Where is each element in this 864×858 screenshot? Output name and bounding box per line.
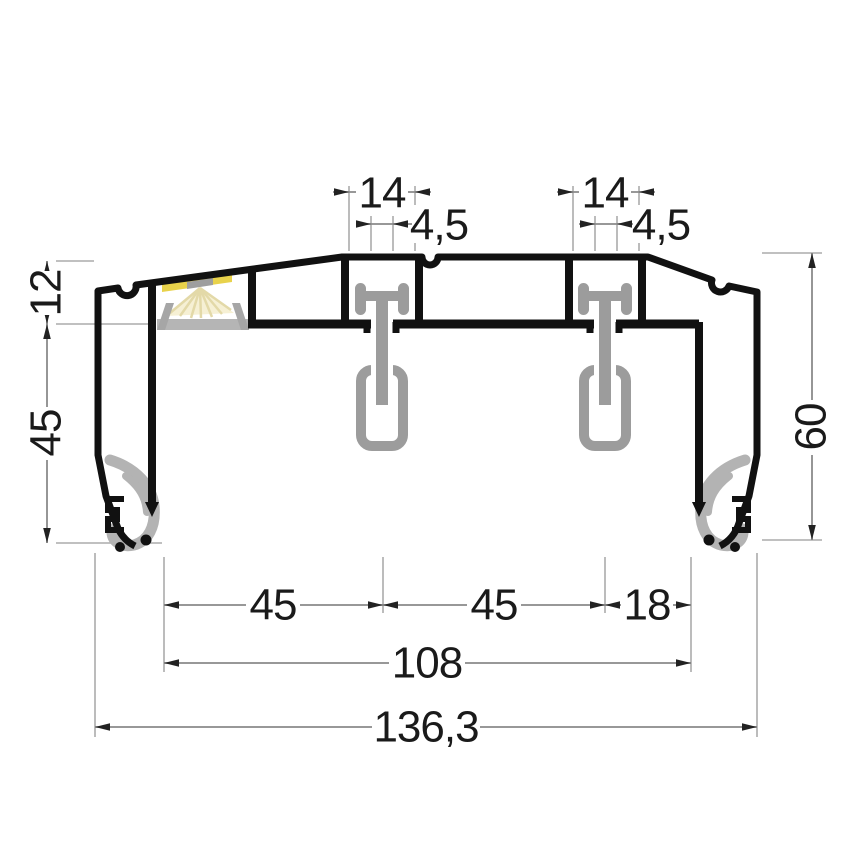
dim-label-inner-width: 108 xyxy=(392,639,462,688)
dim-label-channel-width-right: 14 xyxy=(582,169,629,218)
dim-label-body-height: 45 xyxy=(22,410,71,457)
dim-label-span-left: 45 xyxy=(250,581,297,630)
dimension-labels: 14 4,5 14 4,5 12 45 60 45 45 18 108 136,… xyxy=(22,169,836,752)
glider-left-wheel-a xyxy=(355,283,366,315)
glider-right-wheel-b xyxy=(621,283,632,315)
dim-label-span-right: 18 xyxy=(624,581,671,630)
profile-drawing: 14 4,5 14 4,5 12 45 60 45 45 18 108 136,… xyxy=(0,0,864,858)
glider-left-wheel-b xyxy=(398,283,409,315)
dim-label-total-width: 136,3 xyxy=(373,703,478,752)
glider-right-wheel-a xyxy=(578,283,589,315)
foot-dots xyxy=(115,535,740,553)
glider-right xyxy=(578,283,632,446)
dim-label-channel-height: 12 xyxy=(22,270,71,317)
glider-left xyxy=(355,283,409,446)
dim-label-total-height: 60 xyxy=(787,404,836,451)
dim-label-channel-width-left: 14 xyxy=(359,169,406,218)
dim-label-slot-width-left: 4,5 xyxy=(410,201,468,250)
diffuser-plate xyxy=(157,319,249,330)
glider-right-stem xyxy=(599,295,611,405)
dim-label-span-center: 45 xyxy=(471,581,518,630)
glider-left-stem xyxy=(376,295,388,405)
technical-drawing-canvas: 14 4,5 14 4,5 12 45 60 45 45 18 108 136,… xyxy=(0,0,864,858)
dim-label-slot-width-right: 4,5 xyxy=(632,201,690,250)
